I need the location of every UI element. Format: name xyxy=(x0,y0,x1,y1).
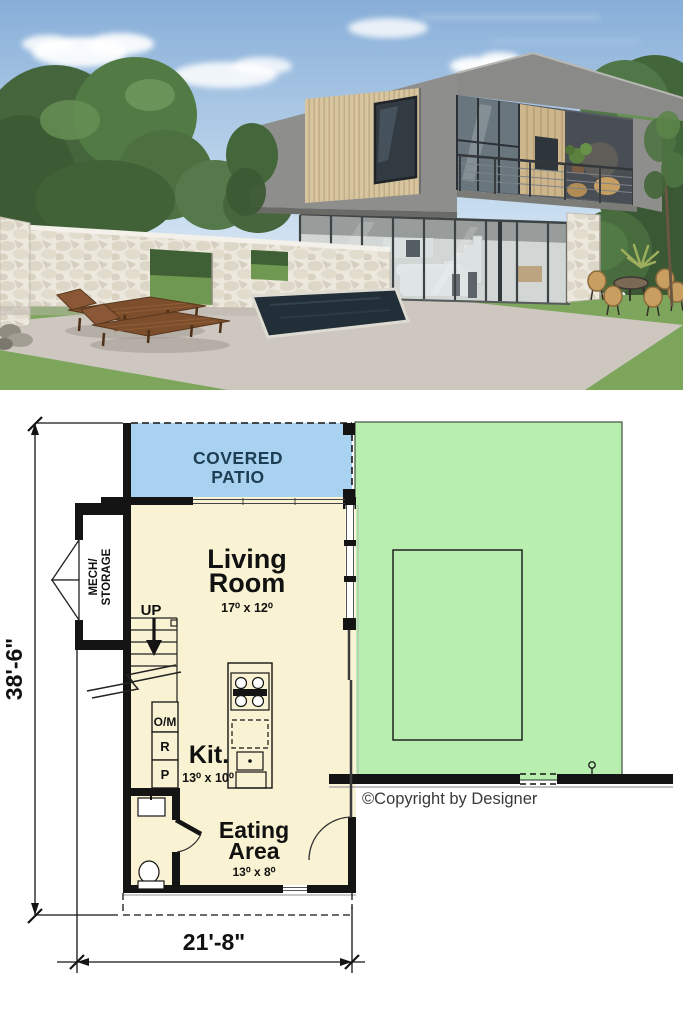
footprint-dashed-outline xyxy=(123,893,352,915)
copyright-text: ©Copyright by Designer xyxy=(362,790,538,808)
mech-storage-label-line1: MECH/ xyxy=(88,558,100,596)
mech-storage-label-line2: STORAGE xyxy=(101,548,113,605)
covered-patio-label-line2: PATIO xyxy=(211,467,264,487)
balcony-chair xyxy=(594,177,620,195)
covered-patio-label-line1: COVERED xyxy=(193,448,283,468)
bifold-door-symbol xyxy=(52,540,79,580)
floor-plan: COVERED PATIO Living Room 17⁰ x 12⁰ Kit.… xyxy=(0,390,683,1024)
bottom-wall-window xyxy=(283,885,307,893)
lawn-area xyxy=(355,422,622,780)
patio-table xyxy=(614,277,648,289)
stairs-up-label: UP xyxy=(141,602,162,619)
overall-depth-dimension: 38'-6" xyxy=(1,638,27,700)
wall-window-opening xyxy=(251,250,288,281)
eating-area-label-line2: Area xyxy=(228,838,279,864)
refrigerator-label: R xyxy=(160,739,170,754)
toilet xyxy=(139,861,159,883)
eating-area-dims: 13⁰ x 8⁰ xyxy=(233,865,276,879)
living-room-dims: 17⁰ x 12⁰ xyxy=(221,601,274,615)
wall-doorway-opening xyxy=(150,249,212,305)
living-room-label-line2: Room xyxy=(209,568,286,598)
wood-cladding xyxy=(305,88,420,203)
overall-width-dimension: 21'-8" xyxy=(183,929,245,955)
house-render-photo xyxy=(0,0,683,390)
kitchen-dims: 13⁰ x 10⁰ xyxy=(182,771,235,785)
kitchen-label: Kit. xyxy=(189,741,229,769)
pantry-label: P xyxy=(161,767,170,782)
living-room-windows xyxy=(344,505,356,618)
bifold-door-symbol xyxy=(52,580,79,620)
bathroom-sink xyxy=(138,798,165,816)
oven-microwave-label: O/M xyxy=(154,715,177,729)
cooktop-bar xyxy=(233,689,267,696)
listing-image: COVERED PATIO Living Room 17⁰ x 12⁰ Kit.… xyxy=(0,0,683,1024)
